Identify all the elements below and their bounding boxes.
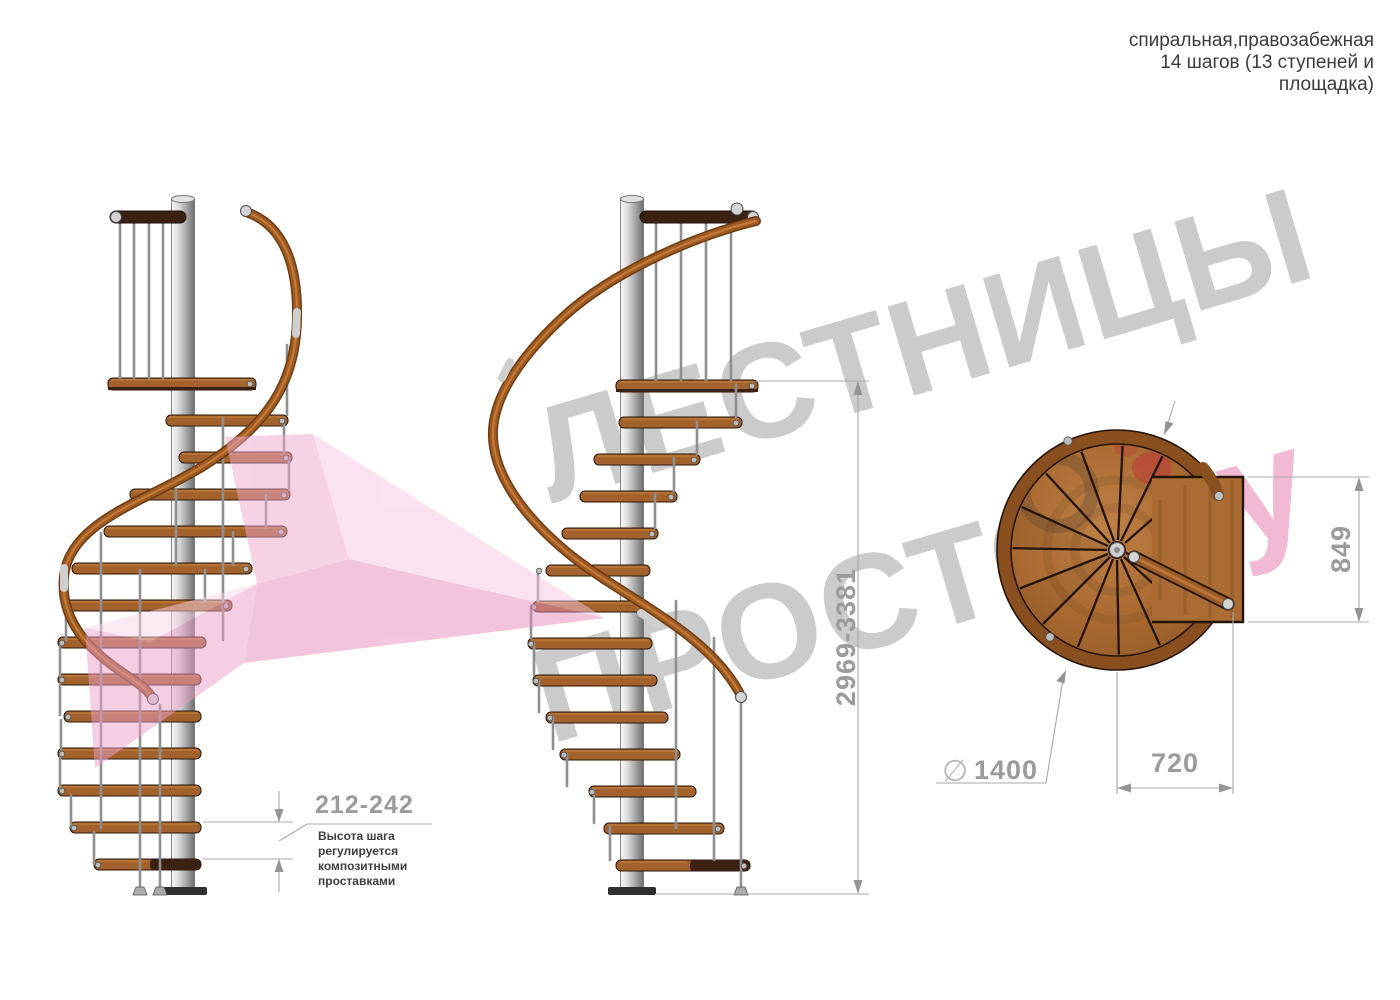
plan-view — [997, 430, 1243, 670]
step-height-note: Высота шага регулируется композитными пр… — [318, 829, 407, 889]
left-elevation-view — [58, 196, 297, 896]
title-line-1: спиральная,правозабежная — [1129, 30, 1374, 52]
railing-ball-finial — [731, 203, 743, 215]
pole-base-flange — [608, 887, 656, 895]
note-line: композитными — [318, 859, 407, 874]
handrail-end-cap — [148, 694, 159, 705]
title-block: спиральная,правозабежная 14 шагов (13 ст… — [1129, 30, 1374, 96]
pole-top-cap — [621, 196, 644, 203]
note-line: проставками — [318, 874, 407, 889]
baluster-feet — [734, 887, 748, 895]
step-height-label: 212-242 — [315, 791, 414, 820]
technical-drawing-canvas: ЛЕСТНИЦЫ ПРОСТО.ру — [0, 0, 1400, 1000]
handrail-start-cap — [241, 206, 252, 217]
right-elevation-view — [493, 196, 759, 896]
title-line-3: площадка) — [1129, 74, 1374, 96]
railing-end-cap — [111, 212, 122, 223]
dark-bottom-tread-half — [150, 859, 201, 870]
handrail-end-cap — [736, 692, 747, 703]
title-line-2: 14 шагов (13 ступеней и — [1129, 52, 1374, 74]
staircase-drawing — [0, 0, 1400, 1000]
note-line: регулируется — [318, 844, 407, 859]
center-pole-hub — [1108, 541, 1126, 559]
pole-top-cap — [172, 196, 195, 203]
note-line: Высота шага — [318, 829, 407, 844]
landing-railing — [110, 211, 186, 223]
baluster-feet — [133, 887, 167, 895]
